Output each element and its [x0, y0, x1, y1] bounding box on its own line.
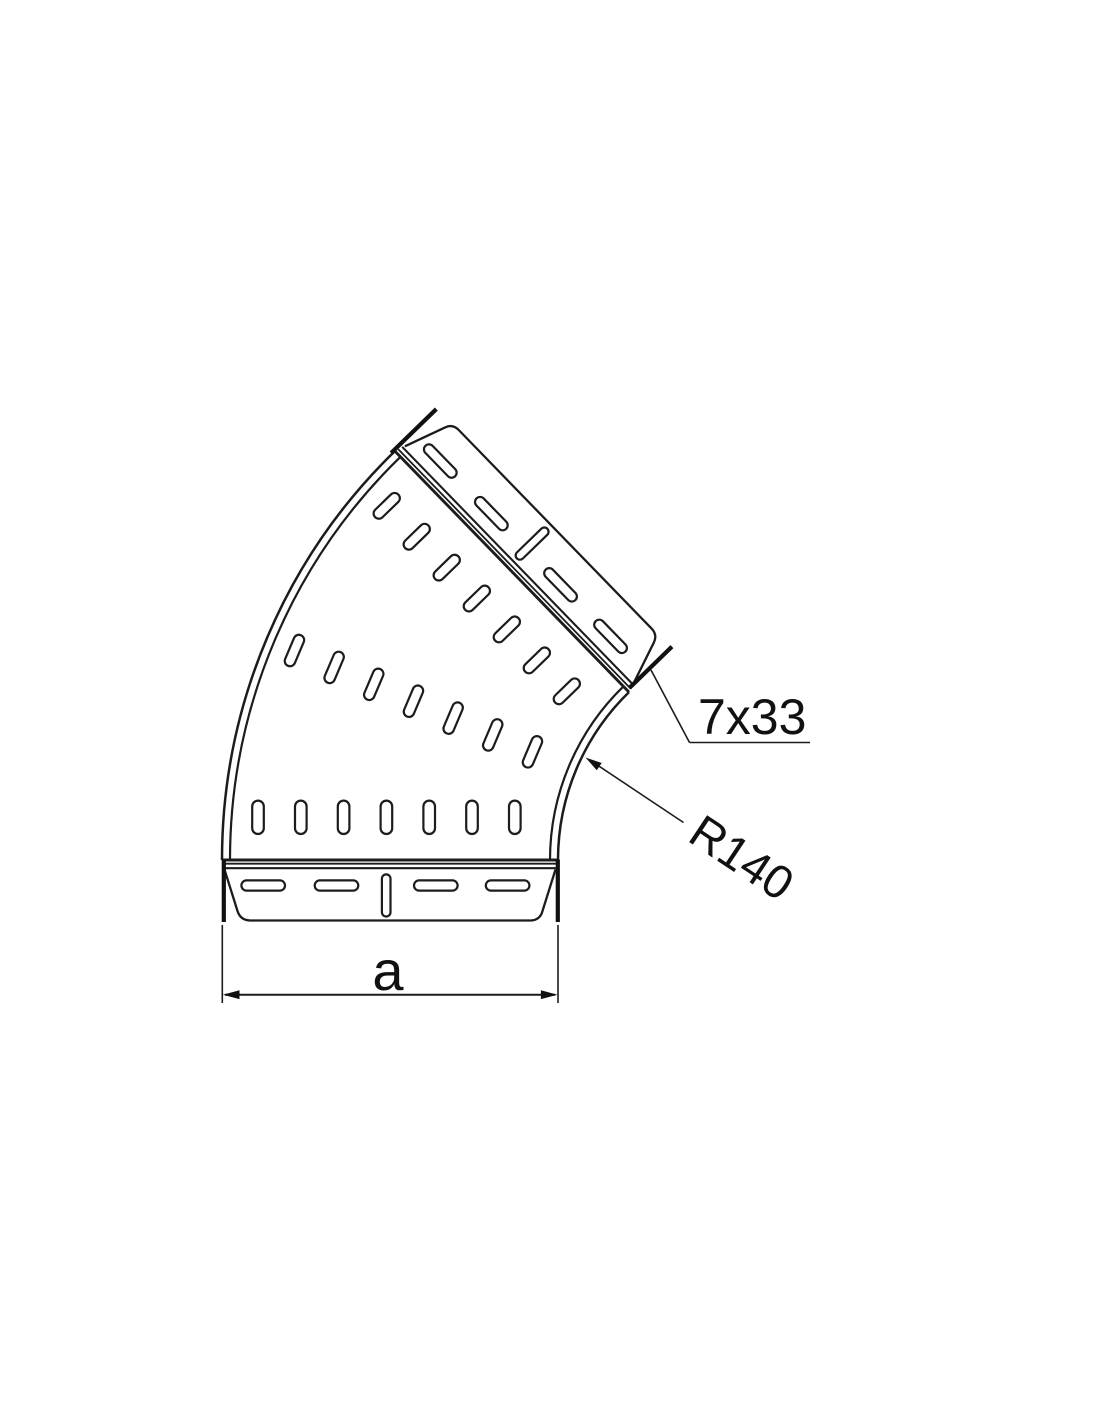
svg-text:a: a [372, 939, 404, 1002]
svg-text:7x33: 7x33 [698, 689, 806, 745]
